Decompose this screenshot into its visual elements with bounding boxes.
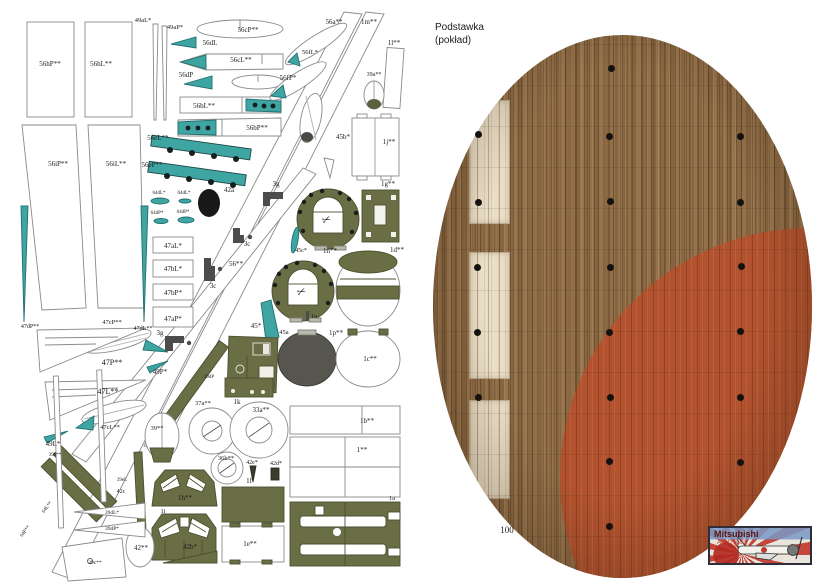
scale-label: 100 bbox=[493, 525, 521, 535]
part-label: 49P* bbox=[153, 368, 168, 376]
part-label: 36b** bbox=[218, 455, 234, 462]
part-shape bbox=[290, 406, 400, 434]
part-shape bbox=[179, 199, 191, 203]
part-label: 49L* bbox=[46, 440, 61, 448]
part-label: 1g** bbox=[381, 180, 396, 188]
part-label: 56iL** bbox=[106, 160, 127, 168]
part-label: 1p** bbox=[329, 329, 344, 337]
part-label: 39dP bbox=[204, 375, 215, 380]
part-label: 39dL* bbox=[105, 510, 120, 516]
part-shape bbox=[301, 132, 313, 142]
part-shape bbox=[298, 210, 302, 214]
part-label: 47bL* bbox=[164, 265, 183, 273]
part-shape bbox=[204, 258, 215, 281]
part-label: 56bP** bbox=[246, 124, 268, 132]
part-label: 64L** bbox=[42, 501, 54, 515]
part-label: 42** bbox=[134, 544, 149, 552]
part-shape bbox=[186, 176, 192, 182]
part-shape bbox=[248, 235, 252, 239]
scanned-model-sheet: { "right_panel": { "title_line1": "Podst… bbox=[0, 0, 826, 584]
part-shape bbox=[178, 217, 194, 223]
deck-vignette bbox=[433, 35, 812, 578]
part-shape bbox=[225, 378, 273, 397]
part-shape bbox=[154, 219, 168, 224]
part-label: 45* bbox=[251, 322, 262, 330]
deck-hole bbox=[606, 523, 613, 530]
part-shape bbox=[22, 125, 86, 310]
deck-hole bbox=[606, 329, 613, 336]
part-shape bbox=[151, 198, 169, 204]
part-shape bbox=[253, 103, 258, 108]
part-shape bbox=[338, 191, 342, 195]
part-label: 33a** bbox=[252, 406, 270, 414]
part-shape bbox=[271, 104, 276, 109]
part-shape bbox=[313, 263, 317, 267]
part-label: 1e** bbox=[243, 540, 257, 548]
part-shape bbox=[162, 26, 167, 120]
part-label: 47P** bbox=[102, 358, 122, 367]
part-shape bbox=[189, 150, 195, 156]
part-label: 56dP bbox=[179, 71, 194, 79]
part-label: 56hP** bbox=[39, 60, 61, 68]
deck-hole bbox=[475, 394, 482, 401]
part-label: 49aP* bbox=[167, 24, 183, 31]
part-shape bbox=[379, 329, 388, 335]
part-label: 1h** bbox=[178, 494, 193, 502]
part-shape bbox=[261, 390, 265, 394]
part-shape bbox=[262, 523, 272, 527]
badge-model: A6M2 Zero bbox=[717, 540, 747, 546]
part-shape bbox=[208, 179, 214, 185]
part-label: 45b* bbox=[336, 133, 351, 141]
part-label: 3g bbox=[157, 329, 165, 337]
part-shape bbox=[302, 200, 306, 204]
part-label: 39dP* bbox=[105, 526, 119, 532]
part-shape bbox=[171, 37, 196, 48]
part-label: 47cL** bbox=[100, 424, 120, 431]
part-label: 47L** bbox=[98, 387, 119, 396]
part-shape bbox=[250, 390, 254, 394]
part-shape bbox=[337, 286, 399, 299]
deck-hole bbox=[606, 133, 613, 140]
part-shape bbox=[27, 22, 74, 117]
part-shape bbox=[306, 311, 309, 321]
part-label: 64dP* bbox=[177, 210, 190, 215]
part-shape bbox=[383, 47, 404, 108]
part-shape bbox=[206, 126, 211, 131]
part-label: 1f bbox=[246, 477, 253, 485]
deck-hole bbox=[608, 65, 615, 72]
part-shape bbox=[290, 318, 302, 322]
part-label: 1b** bbox=[360, 417, 375, 425]
deck-oval bbox=[433, 35, 812, 578]
part-shape bbox=[167, 147, 173, 153]
part-shape bbox=[357, 176, 367, 180]
part-shape bbox=[230, 560, 240, 564]
part-shape bbox=[277, 272, 281, 276]
part-label: 56fP* bbox=[280, 74, 297, 82]
part-label: 42e* bbox=[246, 460, 258, 466]
deck-hole bbox=[737, 394, 744, 401]
part-shape bbox=[273, 283, 277, 287]
part-shape bbox=[233, 156, 239, 162]
part-label: 1l** bbox=[388, 39, 401, 47]
part-shape bbox=[262, 104, 267, 109]
part-label: 1i bbox=[160, 508, 165, 515]
part-shape bbox=[301, 229, 305, 233]
part-shape bbox=[298, 330, 316, 335]
part-shape bbox=[367, 99, 381, 109]
part-shape bbox=[324, 158, 334, 178]
part-label: 3g bbox=[273, 180, 281, 188]
part-shape bbox=[381, 114, 391, 118]
part-shape bbox=[300, 516, 386, 527]
part-label: 56eL** bbox=[147, 134, 169, 142]
part-label: 56dL bbox=[203, 39, 218, 47]
part-shape bbox=[262, 560, 272, 564]
deck-hole bbox=[474, 264, 481, 271]
part-label: 1n** bbox=[323, 247, 338, 255]
part-label: 1k bbox=[234, 398, 242, 406]
deck-hole bbox=[607, 394, 614, 401]
part-label: 3c bbox=[244, 240, 251, 248]
part-label: 56bL** bbox=[193, 102, 215, 110]
deck-hole bbox=[474, 329, 481, 336]
deck-hole bbox=[475, 199, 482, 206]
part-label: 1d** bbox=[390, 246, 405, 254]
badge-brand: Mitsubishi bbox=[714, 529, 759, 539]
part-shape bbox=[347, 197, 351, 201]
part-shape bbox=[388, 512, 400, 520]
part-shape bbox=[276, 301, 280, 305]
part-label: 64dL* bbox=[152, 191, 166, 196]
part-label: 3c bbox=[210, 282, 217, 290]
deck-hole bbox=[737, 328, 744, 335]
part-shape bbox=[180, 517, 189, 527]
part-shape bbox=[186, 126, 191, 131]
part-label: 47dL** bbox=[134, 326, 153, 332]
part-shape bbox=[388, 548, 400, 556]
part-shape bbox=[218, 267, 222, 271]
part-label: 45c* bbox=[295, 248, 307, 254]
part-label: 39eL bbox=[117, 478, 127, 483]
part-label: 56cP** bbox=[238, 26, 260, 34]
part-label: 56fL* bbox=[302, 49, 318, 56]
part-shape bbox=[352, 118, 399, 176]
part-label: 39c** bbox=[88, 560, 102, 566]
part-label: 1m** bbox=[361, 18, 377, 26]
part-shape bbox=[391, 232, 396, 237]
part-shape bbox=[374, 205, 386, 225]
deck-hole bbox=[737, 199, 744, 206]
part-shape bbox=[134, 452, 146, 532]
part-shape bbox=[309, 193, 313, 197]
part-label: 45a bbox=[279, 329, 289, 336]
part-label: 42d* bbox=[270, 461, 282, 467]
part-shape bbox=[391, 195, 396, 200]
part-label: 39a** bbox=[367, 72, 382, 78]
part-shape bbox=[153, 24, 158, 120]
part-shape bbox=[315, 506, 324, 515]
deck-hole bbox=[737, 133, 744, 140]
part-label: 1** bbox=[357, 446, 368, 454]
part-shape bbox=[211, 153, 217, 159]
part-label: 47bP* bbox=[164, 289, 182, 297]
parts-sheet: 56hP**56hL**49aL*49aP*56cP**56dL56cL**56… bbox=[0, 0, 430, 584]
part-label: 49aL* bbox=[135, 17, 152, 24]
part-shape bbox=[230, 523, 240, 527]
part-label: 56a** bbox=[325, 18, 343, 26]
part-shape bbox=[278, 332, 336, 386]
part-label: 42b* bbox=[183, 543, 198, 551]
part-shape bbox=[329, 282, 333, 286]
part-label: 42c bbox=[117, 489, 126, 495]
part-shape bbox=[350, 230, 354, 234]
part-shape bbox=[354, 211, 358, 215]
deck-hole bbox=[606, 458, 613, 465]
part-shape bbox=[366, 195, 371, 200]
part-label: 1c** bbox=[363, 355, 377, 363]
part-label: 42a bbox=[224, 186, 235, 194]
part-shape bbox=[231, 389, 235, 393]
part-shape bbox=[326, 301, 330, 305]
deck-title-line1: Podstawka bbox=[435, 22, 484, 35]
deck-hole bbox=[475, 131, 482, 138]
part-shape bbox=[339, 251, 397, 273]
part-label: 47dP** bbox=[21, 324, 39, 330]
part-label: 1j** bbox=[383, 138, 396, 146]
part-shape bbox=[196, 126, 201, 131]
part-shape bbox=[284, 265, 288, 269]
part-label: 56iP** bbox=[48, 160, 68, 168]
part-label: 39** bbox=[151, 425, 164, 432]
deck-hole bbox=[607, 198, 614, 205]
part-label: 37a** bbox=[195, 400, 211, 407]
part-shape bbox=[21, 206, 28, 322]
deck-hole bbox=[737, 459, 744, 466]
part-shape bbox=[348, 329, 357, 335]
part-shape bbox=[366, 232, 371, 237]
part-label: 64dP* bbox=[151, 211, 164, 216]
part-label: 56** bbox=[229, 260, 244, 268]
part-label: 39b** bbox=[49, 453, 62, 458]
part-shape bbox=[357, 114, 367, 118]
part-label: 47aL* bbox=[164, 242, 182, 250]
part-label: 64P** bbox=[20, 525, 32, 539]
part-label: 47aP* bbox=[164, 315, 182, 323]
part-shape bbox=[187, 341, 191, 345]
deck-hole bbox=[738, 263, 745, 270]
part-shape bbox=[150, 448, 174, 462]
part-shape bbox=[85, 22, 132, 117]
part-shape bbox=[322, 269, 326, 273]
part-shape bbox=[271, 468, 279, 480]
part-shape bbox=[181, 55, 206, 69]
part-label: 56hL** bbox=[90, 60, 112, 68]
part-shape bbox=[320, 189, 324, 193]
deck-hole bbox=[607, 264, 614, 271]
mitsubishi-badge: Mitsubishi A6M2 Zero bbox=[708, 526, 812, 565]
part-shape bbox=[263, 344, 269, 354]
part-shape bbox=[222, 487, 284, 522]
part-label: 56eP** bbox=[142, 161, 164, 169]
part-label: 47cP** bbox=[102, 319, 122, 326]
part-shape bbox=[300, 544, 386, 555]
part-shape bbox=[198, 189, 220, 217]
part-shape bbox=[164, 173, 170, 179]
part-shape bbox=[88, 125, 144, 308]
part-label: 1a bbox=[389, 495, 395, 502]
part-shape bbox=[333, 528, 341, 536]
part-label: 64dL* bbox=[177, 191, 191, 196]
part-shape bbox=[295, 261, 299, 265]
part-label: 1o bbox=[311, 313, 318, 320]
part-label: 56cL** bbox=[230, 56, 252, 64]
part-shape bbox=[37, 328, 146, 372]
